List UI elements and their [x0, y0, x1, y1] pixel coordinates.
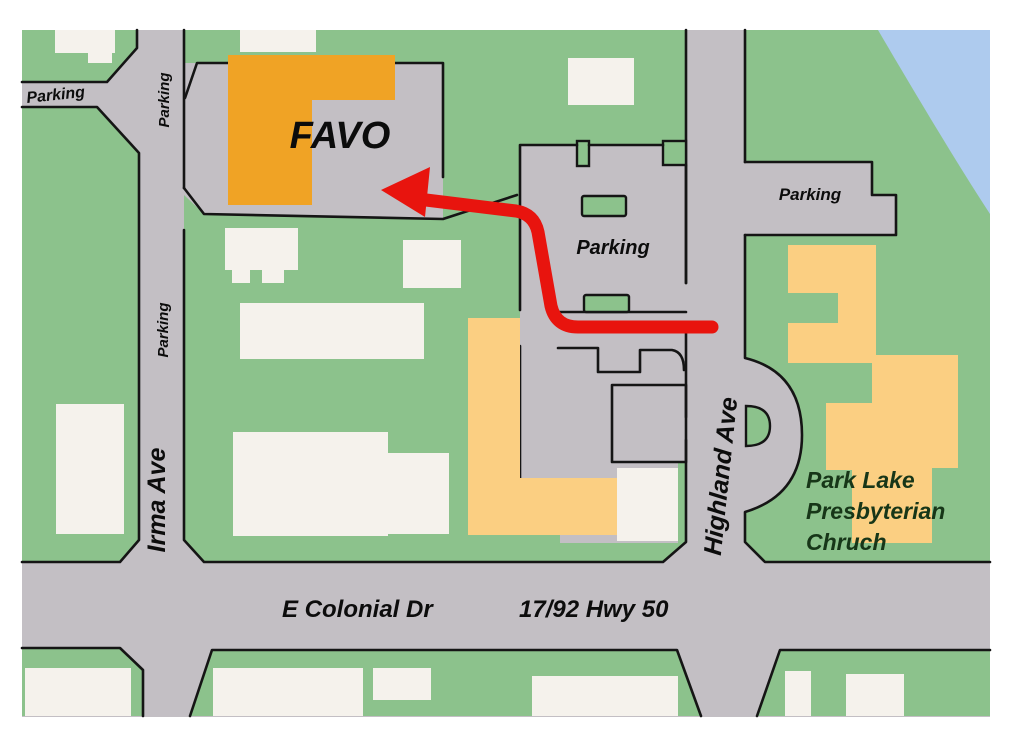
building — [617, 468, 678, 541]
building — [225, 228, 298, 270]
building — [785, 671, 811, 716]
label-parking-road-top: Parking — [156, 72, 173, 127]
building — [373, 668, 431, 700]
building — [233, 432, 388, 536]
building — [56, 404, 124, 534]
map-page: FAVO Parking Parking Parking Irma Ave Hi… — [0, 0, 1016, 740]
lot-notch — [577, 141, 589, 166]
building — [55, 30, 115, 53]
favo-label: FAVO — [290, 115, 391, 157]
label-e-colonial-dr: E Colonial Dr — [282, 596, 434, 623]
building — [240, 303, 424, 359]
favo-directions-map: FAVO Parking Parking Parking Irma Ave Hi… — [0, 0, 1016, 740]
label-church-line2: Presbyterian — [806, 498, 945, 524]
label-parking-right: Parking — [779, 185, 842, 204]
road-island — [746, 406, 770, 446]
label-parking-road-mid: Parking — [155, 302, 172, 357]
label-church-line1: Park Lake — [806, 467, 915, 493]
parking-island-bottom — [584, 295, 629, 312]
building — [568, 58, 634, 105]
label-church-line3: Chruch — [806, 529, 887, 555]
building — [532, 676, 678, 716]
building — [262, 270, 284, 283]
building — [232, 270, 250, 283]
building — [240, 30, 316, 52]
building — [387, 453, 449, 534]
building — [88, 53, 112, 63]
building — [25, 668, 131, 716]
parking-island-top — [582, 196, 626, 216]
label-irma-ave: Irma Ave — [143, 448, 171, 553]
building — [846, 674, 904, 716]
label-highway: 17/92 Hwy 50 — [519, 596, 669, 623]
building — [213, 668, 363, 716]
label-parking-central: Parking — [576, 237, 649, 259]
building — [403, 240, 461, 288]
lot-step — [663, 141, 686, 165]
